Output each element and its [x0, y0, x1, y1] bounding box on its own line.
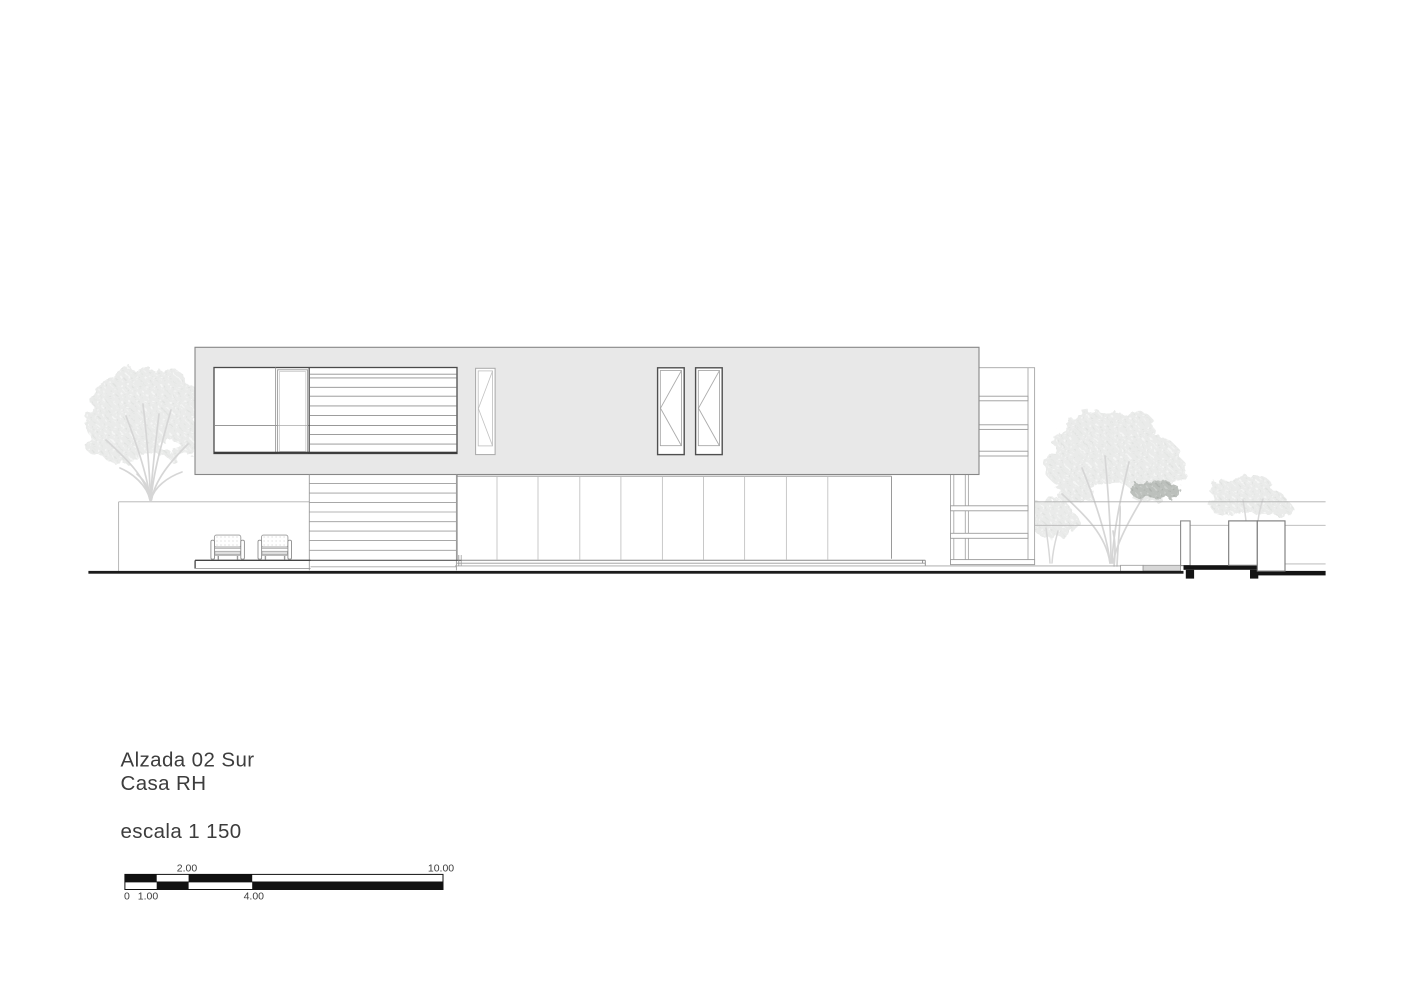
- svg-text:10.00: 10.00: [428, 862, 454, 874]
- svg-text:4.00: 4.00: [244, 891, 265, 903]
- svg-text:1.00: 1.00: [138, 891, 159, 903]
- svg-text:escala 1 150: escala 1 150: [121, 820, 242, 843]
- svg-text:Alzada 02 Sur: Alzada 02 Sur: [121, 749, 255, 772]
- svg-text:Casa RH: Casa RH: [121, 772, 207, 795]
- svg-text:2.00: 2.00: [177, 862, 198, 874]
- svg-text:0: 0: [124, 891, 130, 903]
